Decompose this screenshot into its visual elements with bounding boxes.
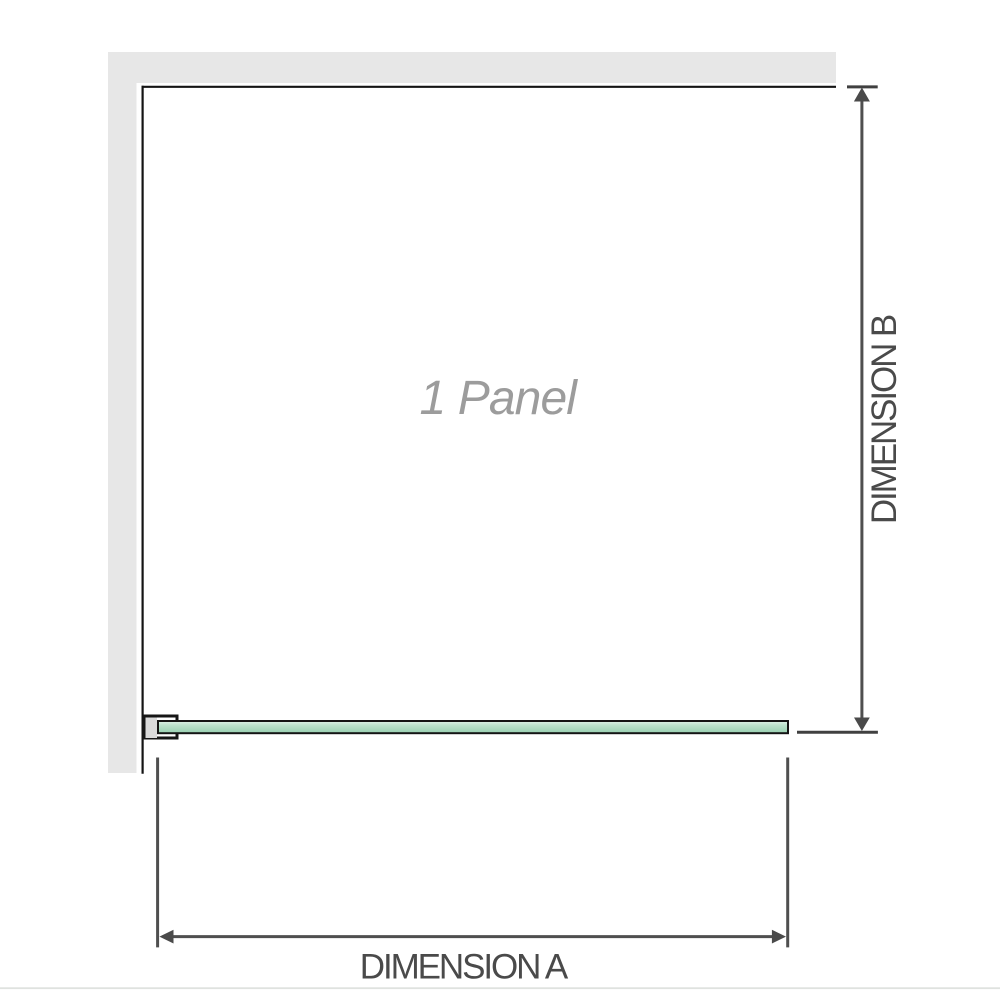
svg-text:DIMENSION B: DIMENSION B [865,315,904,524]
svg-text:1 Panel: 1 Panel [420,372,579,425]
svg-text:DIMENSION A: DIMENSION A [360,948,569,987]
